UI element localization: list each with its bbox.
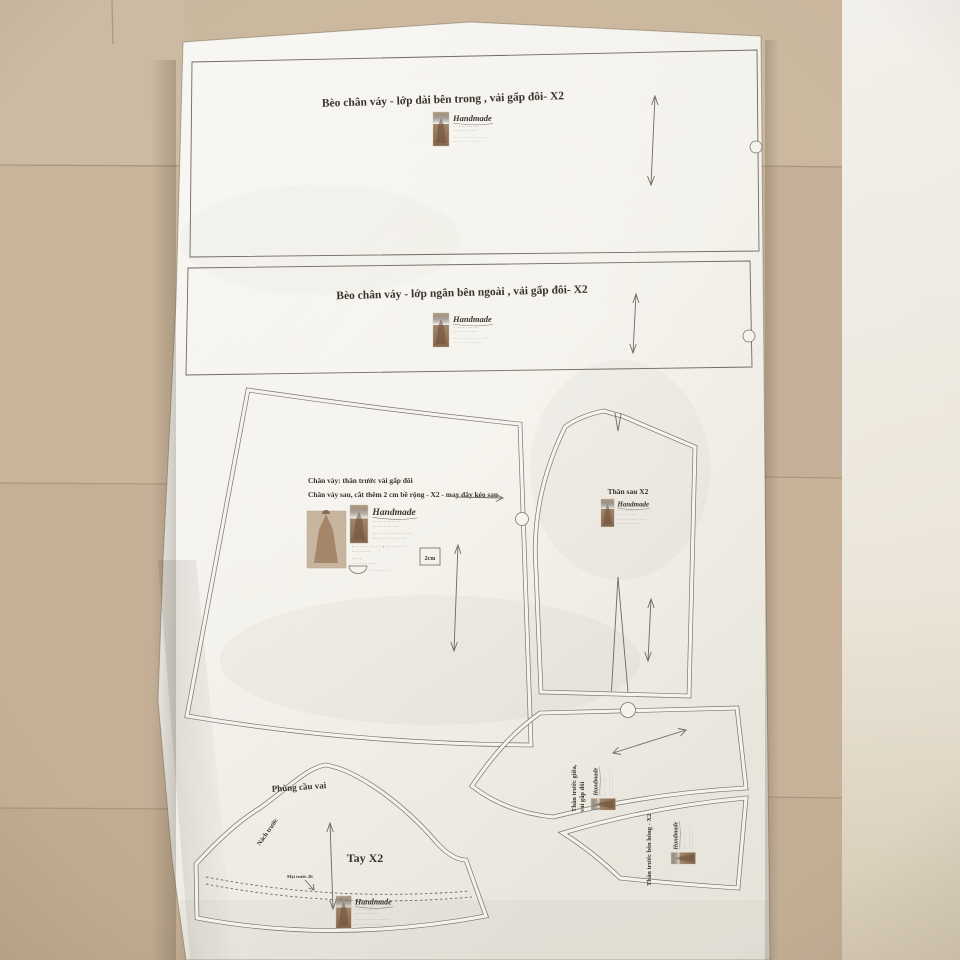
photo-of-sewing-pattern: Handmade ·· ···· ··· ····· ···· ···· ···…: [0, 0, 960, 960]
vignette: [0, 0, 960, 960]
scene: Handmade ·· ···· ··· ····· ···· ···· ···…: [0, 0, 960, 960]
